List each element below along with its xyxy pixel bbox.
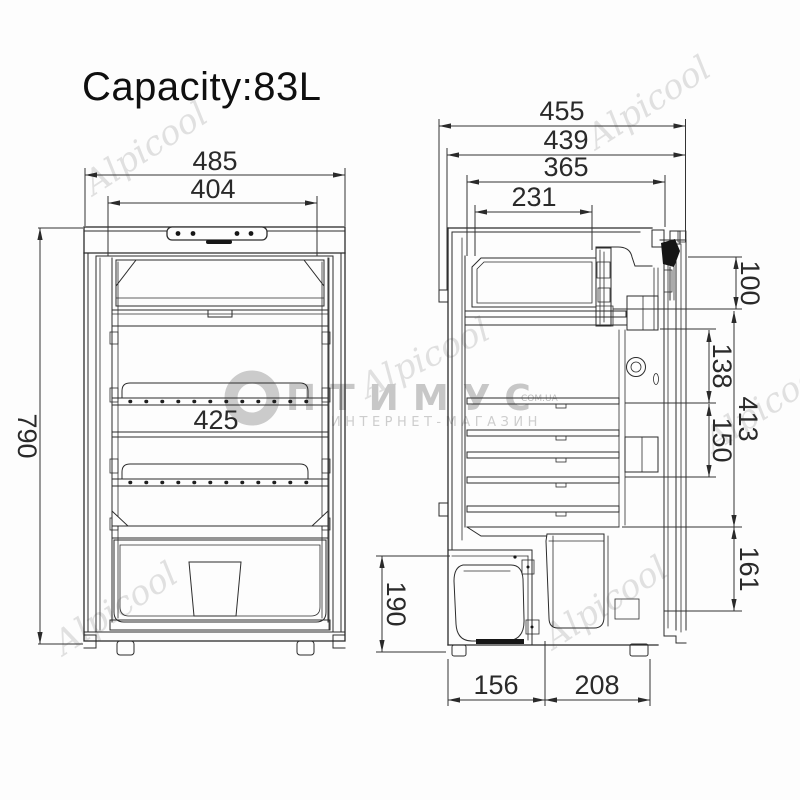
brand-watermark: Alpicool	[44, 554, 185, 665]
front-feet	[117, 641, 314, 655]
dim-side-compressor-height: 190	[376, 556, 450, 652]
dim-side-depth-body: 439	[447, 125, 686, 290]
store-domain-text: COM.UA	[521, 394, 559, 404]
side-door-bins	[625, 296, 659, 472]
dim-front-height: 790	[12, 228, 83, 644]
dim-text-425: 425	[193, 405, 238, 435]
dim-text-161: 161	[734, 546, 764, 591]
technical-drawing-page: ПТИМУС COM.UA ИНТЕРНЕТ-МАГАЗИН Alpicool …	[0, 0, 800, 800]
dim-text-190: 190	[381, 581, 411, 626]
dim-text-365: 365	[543, 152, 588, 182]
dim-side-right-chain: 100 413 138 150 161	[613, 257, 765, 611]
store-tagline-text: ИНТЕРНЕТ-МАГАЗИН	[331, 415, 542, 430]
dim-text-150: 150	[707, 417, 737, 462]
dim-text-231: 231	[511, 182, 556, 212]
fridge-dimension-drawing: ПТИМУС COM.UA ИНТЕРНЕТ-МАГАЗИН Alpicool …	[0, 0, 800, 800]
page-title: Capacity:83L	[82, 65, 321, 109]
brand-watermark: Alpicool	[534, 548, 675, 659]
dim-text-208: 208	[574, 670, 619, 700]
front-door-handle	[167, 227, 267, 244]
watermark-layer: ПТИМУС COM.UA ИНТЕРНЕТ-МАГАЗИН Alpicool …	[44, 48, 800, 665]
brand-watermark: Alpicool	[577, 48, 718, 159]
dim-text-439: 439	[543, 125, 588, 155]
dim-text-404: 404	[190, 174, 235, 204]
dim-text-156: 156	[473, 670, 518, 700]
side-shelves	[467, 330, 625, 536]
dim-side-depth-interior: 365	[467, 152, 665, 256]
dim-text-485: 485	[192, 146, 237, 176]
dim-text-100: 100	[735, 260, 765, 305]
dim-side-bottom-depths: 156 208	[448, 641, 650, 706]
dim-text-455: 455	[539, 96, 584, 126]
dim-side-freezer-depth: 231	[475, 182, 592, 256]
side-top-hinge	[596, 230, 686, 330]
dim-text-138: 138	[707, 343, 737, 388]
side-freezer	[465, 248, 626, 326]
dim-text-790: 790	[12, 413, 42, 458]
side-compressor	[448, 550, 539, 645]
